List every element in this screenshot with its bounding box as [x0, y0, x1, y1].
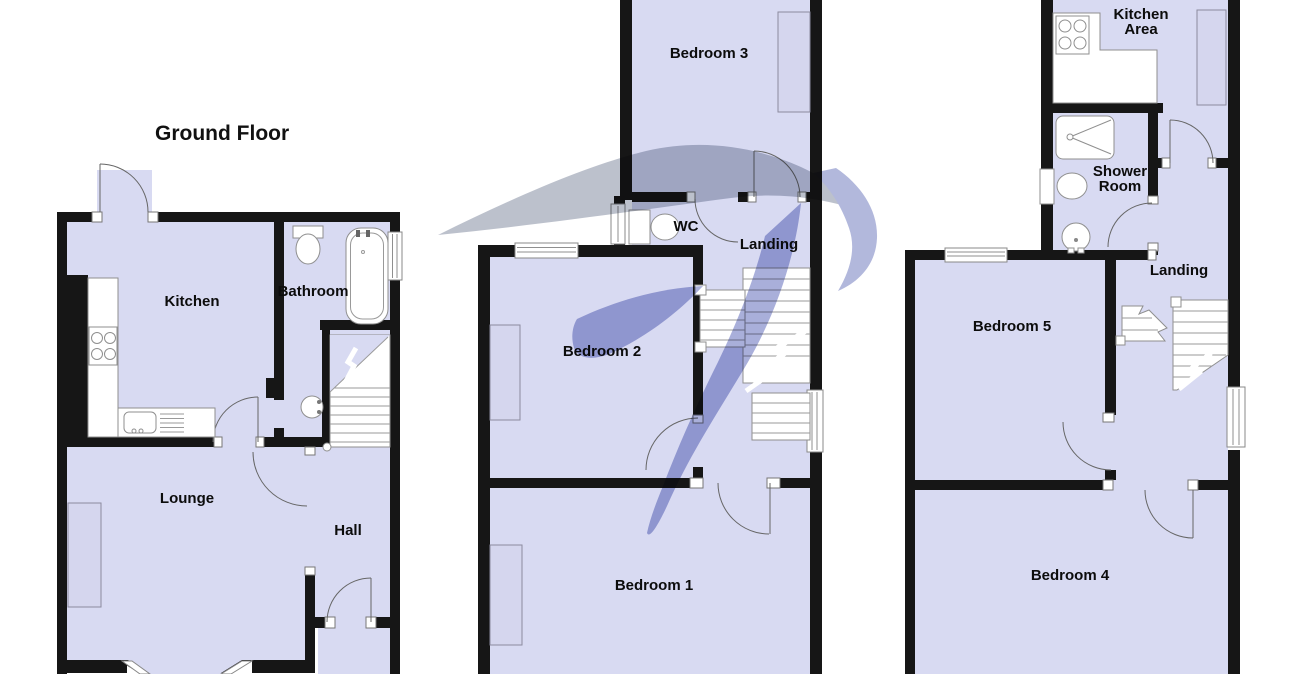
ground-staircase — [323, 335, 390, 451]
bedroom5-floor — [915, 260, 1116, 490]
bedroom1-furniture — [490, 545, 522, 645]
hall-label: Hall — [334, 522, 362, 539]
hob-fixture — [89, 327, 117, 365]
wc-window — [611, 204, 625, 244]
first-floor-plan: Bedroom 3 WC Landing Bedroom 2 Bedroom 1 — [478, 0, 823, 674]
lounge-floor — [67, 447, 307, 660]
bedroom4-label: Bedroom 4 — [1031, 567, 1110, 584]
sink-fixture — [118, 408, 215, 437]
shower-tray-fixture — [1056, 116, 1114, 159]
second-floor-plan: Kitchen Area Shower Room Landing Bedroom… — [905, 0, 1245, 674]
landing2-window — [1227, 387, 1245, 447]
landing2-floor — [1116, 260, 1228, 490]
kitchen-area-label-line2: Area — [1124, 21, 1158, 38]
bedroom1-floor — [693, 478, 810, 674]
landing2-label: Landing — [1150, 262, 1208, 279]
bedroom1-label: Bedroom 1 — [615, 577, 693, 594]
kitchen-area-units — [1197, 10, 1226, 105]
bedroom3-label: Bedroom 3 — [670, 45, 748, 62]
bedroom3-furniture — [778, 12, 810, 112]
shower-room-label-line2: Room — [1099, 178, 1142, 195]
bedroom2-window — [515, 243, 578, 258]
floorplan-canvas: Kitchen Bathroom Lounge Hall — [0, 0, 1300, 674]
wc-label: WC — [674, 218, 699, 235]
lounge-label: Lounge — [160, 490, 214, 507]
bedroom5-label: Bedroom 5 — [973, 318, 1051, 335]
floorplan-page: Ground Floor — [0, 0, 1300, 674]
cloakroom-basin-fixture — [301, 396, 323, 418]
bedroom2-furniture — [490, 325, 520, 420]
landing-label: Landing — [740, 236, 798, 253]
bathroom-window — [388, 232, 402, 280]
vestibule-floor — [318, 628, 390, 674]
ground-floor-plan: Kitchen Bathroom Lounge Hall — [57, 164, 402, 674]
bath-fixture — [346, 228, 388, 324]
hob2-fixture — [1056, 16, 1089, 54]
bedroom2-label: Bedroom 2 — [563, 343, 641, 360]
bathroom-label: Bathroom — [278, 283, 349, 300]
kitchen-label: Kitchen — [164, 293, 219, 310]
lounge-furniture — [68, 503, 101, 607]
bedroom5-window — [945, 248, 1007, 262]
